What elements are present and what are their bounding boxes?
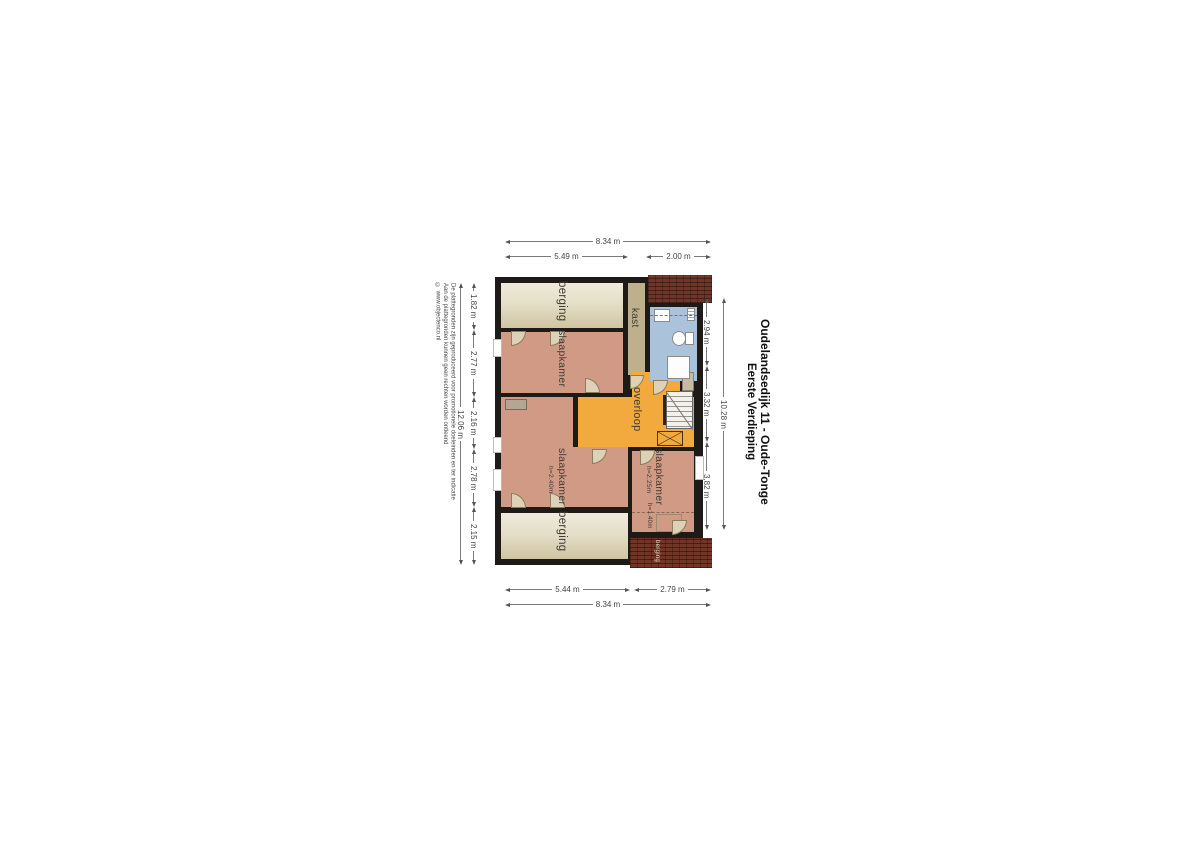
dim-left-seg1-label: 1.82 m xyxy=(469,291,478,321)
dim-top-seg2: 2.00 m xyxy=(646,252,711,261)
dim-left-total: 12.06 m xyxy=(456,283,465,565)
dim-top-total: 8.34 m xyxy=(505,237,711,246)
disclaimer: De plattegronden zijn geproduceerd voor … xyxy=(433,283,456,545)
dim-bottom-seg1-label: 5.44 m xyxy=(552,585,582,594)
label-slaapkamer-left-height: h=2.40m xyxy=(547,466,554,494)
window-left-2 xyxy=(493,437,502,453)
dim-top-seg1: 5.49 m xyxy=(505,252,628,261)
room-kast xyxy=(628,283,645,375)
window-left-1 xyxy=(493,339,502,357)
disclaimer-line-2: Aan de plattegronden kunnen geen rechten… xyxy=(441,283,449,545)
dim-top-seg2-label: 2.00 m xyxy=(663,252,693,261)
dim-right-seg2: 3.32 m xyxy=(702,366,711,442)
dim-left-seg4-label: 2.78 m xyxy=(469,463,478,493)
label-overloop: overloop xyxy=(631,387,643,432)
plan-title-floor: Eerste Verdieping xyxy=(744,312,758,512)
dim-bottom-total: 8.34 m xyxy=(505,600,711,609)
staircase xyxy=(666,391,693,429)
window-left-3 xyxy=(493,469,502,491)
disclaimer-line-1: De plattegronden zijn geproduceerd voor … xyxy=(448,283,456,545)
dim-left-seg3-label: 2.16 m xyxy=(469,408,478,438)
label-knee-wall-height: h=1.40m xyxy=(646,503,652,529)
plan-title: Oudelandsedijk 11 - Oude-Tonge Eerste Ve… xyxy=(744,312,772,512)
toilet-tank-icon xyxy=(685,332,694,345)
label-berging-bottom: berging xyxy=(556,511,568,551)
dim-right-seg3-label: 3.82 m xyxy=(702,471,711,501)
dim-bottom-seg1: 5.44 m xyxy=(505,585,630,594)
dim-right-seg2-label: 3.32 m xyxy=(702,389,711,419)
dim-left-seg2-label: 2.77 m xyxy=(469,348,478,378)
chimney-block xyxy=(505,399,527,410)
dim-right-seg1-label: 2.94 m xyxy=(702,317,711,347)
dim-left-seg5-label: 2.15 m xyxy=(469,521,478,551)
dim-right-total: 10.28 m xyxy=(719,298,728,530)
dim-left-seg3: 2.16 m xyxy=(469,397,478,449)
dim-left-seg5: 2.15 m xyxy=(469,507,478,565)
floorplan-page: { "title": { "line1": "Oudelandsedijk 11… xyxy=(0,0,1199,848)
label-slaapkamer-left: slaapkamer xyxy=(556,448,568,505)
bathroom-slope-line xyxy=(650,315,697,316)
disclaimer-copyright: © www.objectenco.nl xyxy=(433,283,441,545)
dim-top-total-label: 8.34 m xyxy=(593,237,623,246)
dim-left-seg1: 1.82 m xyxy=(469,283,478,330)
dim-right-total-label: 10.28 m xyxy=(719,397,728,432)
dim-bottom-seg2: 2.79 m xyxy=(634,585,711,594)
label-slaapkamer-right: slaapkamer xyxy=(653,448,665,505)
dim-left-seg2: 2.77 m xyxy=(469,330,478,397)
dim-right-seg3: 3.82 m xyxy=(702,442,711,530)
label-berging-exterior: berging xyxy=(654,540,660,562)
knee-wall-line xyxy=(632,512,694,513)
dim-bottom-total-label: 8.34 m xyxy=(593,600,623,609)
void-cross-box xyxy=(657,431,683,446)
label-slaapkamer-right-height: h=2.25m xyxy=(645,466,652,494)
label-berging-top: berging xyxy=(556,281,568,321)
dim-left-seg4: 2.78 m xyxy=(469,449,478,507)
dim-left-total-label: 12.06 m xyxy=(456,407,465,442)
label-slaapkamer-main: slaapkamer xyxy=(556,330,568,387)
dim-top-seg1-label: 5.49 m xyxy=(551,252,581,261)
label-kast: kast xyxy=(629,308,640,328)
stair-railing xyxy=(663,395,666,425)
dim-right-seg1: 2.94 m xyxy=(702,298,711,366)
dim-bottom-seg2-label: 2.79 m xyxy=(657,585,687,594)
plan-title-address: Oudelandsedijk 11 - Oude-Tonge xyxy=(758,312,772,512)
staircase-diagonal xyxy=(666,392,693,430)
brick-terrace-bottom xyxy=(630,538,712,568)
shower-icon xyxy=(667,356,690,379)
toilet-bowl-icon xyxy=(672,331,686,346)
